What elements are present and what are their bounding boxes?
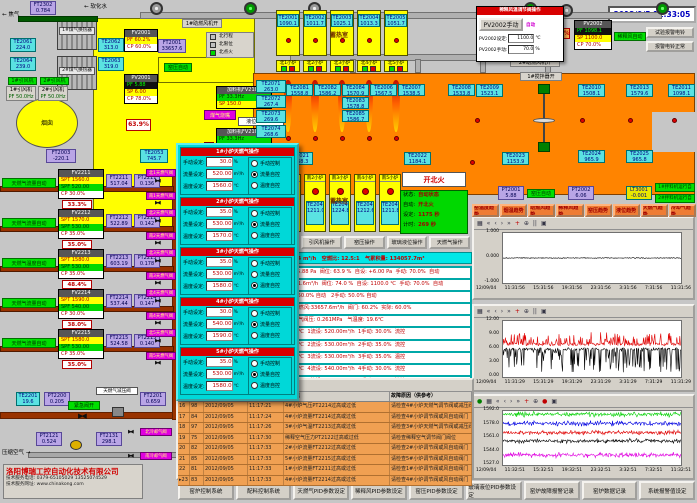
x-axis-tick: 3:32:51	[619, 468, 636, 473]
burner-field-input[interactable]: 35.0	[206, 257, 233, 267]
alarm-cell: 请检查1#小炉调节阀或风自动阀门	[390, 465, 472, 475]
burner-field-label: 温度设定:	[183, 283, 205, 290]
alarm-cell: 11:17:33	[248, 455, 284, 465]
chimney-label: 烟囱	[41, 120, 53, 127]
last-icon[interactable]: »	[507, 220, 511, 227]
radio-icon[interactable]	[251, 282, 258, 289]
trend-button-稀释风趋势[interactable]: 稀释风趋势	[556, 204, 583, 217]
burner-field-input[interactable]: 1580.0	[206, 281, 233, 291]
kiln-pressure-auto: 窑压自动	[527, 189, 555, 198]
gas-reducer-label: 天燃气减压阀	[96, 387, 138, 395]
run-icon[interactable]: ●	[477, 398, 482, 405]
gas-auto-mode: 天燃气流量自动	[2, 338, 56, 348]
emergency-valve-open: 紧急阀开	[68, 401, 100, 410]
sensor-dot	[286, 38, 291, 43]
main-gas-pt-value: 0.205	[45, 399, 69, 405]
x-axis-tick: 12/09/04	[476, 468, 496, 473]
radio-icon[interactable]	[251, 171, 258, 178]
pv2001-controller[interactable]: PV2001PF 5.88SP 6.00CP 78.0%	[124, 74, 158, 104]
burner-field-input[interactable]: 35.0	[206, 357, 233, 367]
next-icon[interactable]: ›	[501, 220, 503, 227]
2-id-fan-box[interactable]: 2#引风机PF 50.0Hz	[38, 86, 68, 101]
grid-icon[interactable]: ▦	[477, 308, 483, 315]
burner-field-input[interactable]: 30.0	[206, 157, 233, 167]
radio-icon[interactable]	[251, 232, 258, 239]
y-axis-tick: -1.000	[474, 279, 499, 284]
run-indicator-square	[335, 66, 341, 72]
gas-valve-north-icon[interactable]: ▶◀	[155, 299, 159, 304]
pt2001-kiln-pressure: PT20015.88	[498, 186, 524, 200]
gas-controller-FV2215[interactable]: FV2215SPT 1580.0SPF 530.00CP 35.0%	[58, 329, 104, 359]
gas-controller-FV2212-tag: FV2212	[59, 210, 103, 217]
save-icon[interactable]: ▣	[541, 220, 547, 227]
sensor-dot	[312, 188, 319, 195]
north-legend: 北行程北限位北点火	[206, 32, 254, 58]
gas-auto-mode: 天燃气流量自动	[2, 298, 56, 308]
south-chamber: 南4小炉TE20441212.6	[354, 174, 376, 232]
gas-valve-label-south: 南4天燃气阀	[146, 312, 176, 320]
bottom-button-窑炉数据记录[interactable]: 窑炉数据记录	[582, 481, 638, 500]
fv2001-controller-tag: FV2001	[125, 30, 157, 37]
burner-field-unit: %	[234, 160, 238, 165]
pv2002-manual-button[interactable]: PV2002手动	[479, 18, 523, 31]
x-axis-tick: 11:31:56	[505, 286, 525, 291]
radio-icon[interactable]	[251, 382, 258, 389]
alarm-table-row[interactable]: 18972012/09/0511:17:263#小炉气温FT2213过高或过低请…	[178, 423, 472, 434]
x-axis-tick: 15:31:56	[533, 286, 553, 291]
south-burner-name: 南4小炉	[355, 175, 375, 182]
gas-controller-FV2214-row: SPT 1590.0	[59, 297, 103, 304]
save-icon[interactable]: ▣	[551, 398, 557, 405]
right-te: TE20111098.1	[668, 84, 695, 97]
alarm-table-row[interactable]: ▸23832012/09/0511:17:334#小炉流量FT2214过高或过低…	[178, 476, 472, 487]
gas-controller-FV2212[interactable]: FV2212SPT 1570.0SPF 530.00CP 35.0%	[58, 209, 104, 239]
crown-te-value: 1570.9	[343, 91, 368, 96]
radio-icon[interactable]	[251, 160, 258, 167]
north-chamber-te-value: 1025.1	[332, 21, 352, 27]
burner-field-input[interactable]: 530.00	[206, 369, 233, 379]
pv2002-controller[interactable]: PV2002PF 1098.1SP 1100.0CP 70.0%	[574, 20, 612, 50]
ft2001-comb-air-flow-value: 33657.6	[159, 46, 185, 52]
zoom-icon[interactable]: ⊕	[524, 220, 529, 227]
radio-icon[interactable]	[251, 360, 258, 367]
burner-mode-option[interactable]: 手动控制	[249, 208, 291, 219]
radio-icon[interactable]	[251, 332, 258, 339]
prev-icon[interactable]: ‹	[504, 398, 506, 405]
gas-valve-south-icon[interactable]: ▶◀	[155, 281, 159, 286]
alarm-cell: 22	[178, 465, 190, 475]
burner-field-input[interactable]: 530.00	[206, 269, 233, 279]
pause-icon[interactable]: ||	[533, 308, 537, 315]
crown-te: TE20841570.9	[342, 84, 369, 96]
x-axis-ticks: 12/09/0411:31:2915:31:2919:31:2923:31:29…	[476, 380, 691, 385]
alarm-header-cell: 故障原因（供参考）	[390, 392, 472, 401]
gas-controller-FV2212-row: SPT 1570.0	[59, 217, 103, 224]
burner-panel-title: 3#小炉天燃气操作	[181, 248, 294, 256]
alarm-cell: 2012/09/05	[204, 444, 248, 454]
burner-field-input[interactable]: 1590.0	[206, 331, 233, 341]
burner-field-unit: %	[234, 210, 238, 215]
burner-mode-option[interactable]: 温度自控	[249, 280, 291, 291]
zoom-icon[interactable]: ⊕	[533, 398, 538, 405]
1-id-fan-box[interactable]: 1#引风机PF 50.0Hz	[6, 86, 36, 101]
gas-flow-FT2214-value: 537.44	[107, 301, 131, 307]
fan-icon	[656, 2, 669, 15]
mixer-2-auto: 2#拌料机运行自动	[655, 194, 695, 203]
main-gas-ft-value: 0.659	[141, 399, 165, 405]
gas-valve-percent: 38.0%	[62, 320, 92, 329]
burner-field-label: 流量设定:	[183, 221, 205, 228]
grid-icon[interactable]: ▦	[477, 220, 483, 227]
last-icon[interactable]: »	[507, 308, 511, 315]
pv2002-set-input[interactable]: 1100.0	[508, 34, 534, 43]
radio-icon[interactable]	[251, 221, 258, 228]
dilution-popup-title: 稀释风温调节阀操作	[477, 7, 563, 15]
y-axis-tick: 12.00	[474, 317, 499, 322]
x-axis-ticks: 12/09/0411:31:5615:31:5619:31:5623:31:56…	[476, 286, 691, 291]
burner-field-input[interactable]: 1560.0	[206, 181, 233, 191]
pv2002-set-unit: ℃	[535, 36, 540, 41]
alarm-table-row[interactable]: 19752012/09/0511:17:30稀释空气压力PT2122过高或过低请…	[178, 434, 472, 445]
radio-icon[interactable]	[251, 321, 258, 328]
mark-icon[interactable]: +	[515, 308, 520, 315]
pv2001-controller-row: CP 78.0%	[125, 96, 157, 103]
gas-controller-FV2213[interactable]: FV2213SPT 1580.0SPF 530.00CP 35.0%	[58, 249, 104, 279]
pause-icon[interactable]: ||	[533, 220, 537, 227]
x-axis-tick: 12/09/04	[476, 380, 496, 385]
dilution-auto-label: 稀释风自动	[614, 32, 646, 41]
radio-icon[interactable]	[251, 210, 258, 217]
burner-mode-option[interactable]: 手动控制	[249, 158, 291, 169]
right-te-value: 965.9	[579, 157, 604, 163]
trend-button-冷却气趋势[interactable]: 冷却气趋势	[669, 204, 696, 217]
gas-valve-north-icon[interactable]: ▶◀	[155, 179, 159, 184]
trend-chart-panel-2: ▦«‹›»+⊕||▣12.009.006.003.000.0012/09/041…	[472, 304, 695, 392]
burner-field-label: 流量设定:	[183, 271, 205, 278]
coke-gas-label: ← 焦气	[2, 10, 19, 18]
burner-mode-option[interactable]: 手动控制	[249, 308, 291, 319]
pv2002-man-input[interactable]: 70.0	[508, 45, 534, 54]
stirrer-motor-icon	[538, 84, 550, 94]
gas-valve-north-icon[interactable]: ▶◀	[155, 259, 159, 264]
alarm-table-row[interactable]: 22812012/09/0511:17:331#小炉流量FT2211过高或过低请…	[178, 465, 472, 476]
alarm-cell: 83	[190, 476, 204, 486]
fire-status-value: 269 秒	[418, 223, 436, 233]
chart-plot-area	[502, 232, 682, 284]
south-burner-name: 南3小炉	[330, 175, 350, 182]
y-axis-tick: 1578.0	[474, 421, 499, 426]
trend-button-窑温度趋势[interactable]: 窑温度趋势	[472, 204, 499, 217]
zoom-icon[interactable]: ⊕	[524, 308, 529, 315]
gas-auto-mode: 天燃气流量自动	[2, 218, 56, 228]
burner-mode-option[interactable]: 手动控制	[249, 258, 291, 269]
burner-field-unit: ℃	[234, 184, 239, 189]
trend-chart-panel-3: ●▦«‹›»+⊕●▣1592.01578.01561.01544.01527.0…	[472, 394, 695, 480]
x-axis-tick: 7:32:51	[645, 468, 662, 473]
crown-te: TE20811558.8	[286, 84, 313, 96]
alarm-cell: 11:17:24	[248, 413, 284, 423]
gas-controller-FV2214[interactable]: FV2214SPT 1590.0SPF 540.00CP 30.0%	[58, 289, 104, 319]
burner-mode-radios: 手动控制流量自控温度自控	[248, 307, 292, 345]
gas-flow-FT2211: FT2211517.04	[106, 174, 132, 188]
run-indicator-square	[281, 66, 287, 72]
radio-icon[interactable]	[251, 260, 258, 267]
first-icon[interactable]: «	[487, 220, 491, 227]
alarm-table-row[interactable]: 16982012/09/0511:17:214#小炉气压PT2214过高或过低请…	[178, 402, 472, 413]
north-burner-label[interactable]: 北1小炉	[276, 60, 300, 72]
bottom-te-value: 1184.1	[405, 159, 430, 165]
mark-icon[interactable]: +	[515, 220, 520, 227]
cooling-valve-north-icon[interactable]: ▶◀	[128, 430, 132, 435]
gas-controller-FV2213-row: SPT 1580.0	[59, 257, 103, 264]
burner-mode-label: 流量自控	[260, 171, 280, 178]
pv2002-controller-row: SP 1100.0	[575, 35, 611, 42]
1-id-fan-pf: PF 50.0Hz	[7, 94, 35, 101]
test-alarm-bell-button[interactable]: 试验报警电铃	[646, 27, 694, 38]
burner-field-label: 流量设定:	[183, 371, 205, 378]
furnace-left-te: TE2073269.6	[256, 110, 286, 123]
burner-field-input[interactable]: 30.0	[206, 307, 233, 317]
burner-field-label: 手动设定:	[183, 159, 205, 166]
burner-mode-option[interactable]: 流量自控	[249, 369, 291, 380]
south-chamber-te: TE20421211.0	[306, 201, 324, 225]
north-chamber-te: TE20021011.7	[304, 14, 326, 27]
crown-te-value: 1533.8	[449, 91, 474, 96]
y-axis-tick: 0.00	[474, 373, 499, 378]
lt3001-glass-level-value: -0.001	[627, 193, 651, 199]
gas-valve-label-north: 北5天燃气阀	[146, 329, 176, 337]
burner-field-label: 手动设定:	[183, 309, 205, 316]
air-valve-icon[interactable]	[70, 440, 82, 450]
burner-field-unit: m³/h	[234, 272, 244, 277]
te2061-temp: TE2061224.0	[10, 38, 36, 52]
chimney: 烟囱	[16, 98, 78, 148]
alarm-cell: 2#小炉流量FT2212过高或过低	[284, 444, 390, 454]
pv2001-controller-row: SP 6.00	[125, 89, 157, 96]
north-chamber-te-value: 1090.1	[278, 21, 298, 27]
north-burner-label[interactable]: 北3小炉	[330, 60, 354, 72]
gas-controller-FV2215-tag: FV2215	[59, 330, 103, 337]
burner-mode-option[interactable]: 流量自控	[249, 169, 291, 180]
gas-valve-label-north: 北3天燃气阀	[146, 249, 176, 257]
gas-flow-FT2213: FT2213603.19	[106, 254, 132, 268]
fv2001-controller[interactable]: FV2001PF 60.2%CP 60.0%	[124, 29, 158, 52]
lt3001-glass-level: LT3001-0.001	[626, 186, 652, 200]
trend-button-row: 窑温度趋势烟温趋势助燃风趋势稀释风趋势窑压趋势液位趋势天燃气趋势冷却气趋势	[472, 204, 696, 217]
gas-controller-FV2214-row: CP 30.0%	[59, 311, 103, 318]
series-红	[503, 430, 681, 435]
ft2302-flow: FT23020.784	[30, 1, 56, 15]
pv2001-controller-tag: PV2001	[125, 75, 157, 82]
alarm-cell: 11:17:21	[248, 402, 284, 412]
gas-reducer-valve-icon[interactable]	[112, 407, 124, 417]
emergency-valve-icon[interactable]: ▶◀	[78, 413, 85, 420]
burner-field-input[interactable]: 530.00	[206, 219, 233, 229]
burner-field-input[interactable]: 35.0	[206, 207, 233, 217]
alarm-table-row[interactable]: 17842012/09/0511:17:244#小炉流量FT2214过高或过低请…	[178, 413, 472, 424]
furnace-left-te-value: 263.0	[257, 87, 285, 93]
gas-flow-FT2215-value: 524.58	[107, 341, 131, 347]
x-axis-tick: 23:31:56	[591, 286, 611, 291]
alarm-cell: 3#小炉气温FT2213过高或过低	[284, 423, 390, 433]
chart-series-svg	[503, 233, 681, 283]
burner-field-input[interactable]: 1580.0	[206, 381, 233, 391]
op-button-玻璃液位操作[interactable]: 玻璃液位操作	[387, 236, 428, 249]
radio-icon[interactable]	[251, 371, 258, 378]
sensor-dot	[672, 118, 677, 123]
north-burner-label[interactable]: 北4小炉	[357, 60, 381, 72]
sensor-dot	[580, 118, 585, 123]
cooling-valve-north: 北冷却气阀	[140, 428, 172, 436]
north-burner-label[interactable]: 北5小炉	[384, 60, 408, 72]
series-蓝	[503, 421, 681, 427]
stop-indicator-square	[370, 66, 376, 72]
x-axis-ticks: 12/09/0411:32:5115:32:5119:32:5123:32:51…	[476, 468, 691, 473]
cooling-valve-south-icon[interactable]: ▶◀	[128, 454, 132, 459]
alarm-cell: 2012/09/05	[204, 476, 248, 486]
bottom-button-玻璃液位PID参数设定[interactable]: 玻璃液位PID参数设定	[466, 481, 522, 500]
flame-dot	[340, 136, 345, 141]
heat-exchanger-1-label: 1#煤气换热器	[59, 27, 95, 35]
burner-field-input[interactable]: 1570.0	[206, 231, 233, 241]
chart-plot-area	[502, 320, 682, 378]
first-icon[interactable]: «	[487, 308, 491, 315]
bottom-button-系统报警值设定[interactable]: 系统报警值设定	[639, 481, 695, 500]
burner-field-unit: ℃	[234, 284, 239, 289]
mark-icon[interactable]: +	[524, 398, 529, 405]
x-axis-tick: 12/09/04	[476, 286, 496, 291]
alarm-cell: 2012/09/05	[204, 413, 248, 423]
pv2002-controller-row: PF 1098.1	[575, 28, 611, 35]
gas-controller-FV2212-row: CP 35.0%	[59, 231, 103, 238]
flame-dot	[367, 136, 372, 141]
burner-mode-radios: 手动控制流量自控温度自控	[248, 357, 292, 395]
burner-field-input[interactable]: 540.00	[206, 319, 233, 329]
main-gas-pt: PT22000.205	[44, 392, 70, 406]
gas-valve-north-icon[interactable]: ▶◀	[155, 219, 159, 224]
burner-field-unit: m³/h	[234, 372, 244, 377]
gas-valve-south-icon[interactable]: ▶◀	[155, 241, 159, 246]
radio-icon[interactable]	[251, 271, 258, 278]
burner-mode-option[interactable]: 温度自控	[249, 380, 291, 391]
burner-mode-option[interactable]: 流量自控	[249, 219, 291, 230]
x-axis-tick: 23:31:29	[591, 380, 611, 385]
sensor-dot	[313, 38, 318, 43]
ft2001-comb-air-flow: FT200133657.6	[158, 39, 186, 53]
burner-mode-option[interactable]: 温度自控	[249, 330, 291, 341]
gas-flow-FT2214: FT2214537.44	[106, 294, 132, 308]
burner-mode-label: 温度自控	[260, 332, 280, 339]
burner-mode-label: 流量自控	[260, 221, 280, 228]
burner-mode-radios: 手动控制流量自控温度自控	[248, 157, 292, 195]
prev-icon[interactable]: ‹	[494, 220, 496, 227]
north-burner-label[interactable]: 北2小炉	[303, 60, 327, 72]
crown-te: TE20831578.8	[342, 97, 369, 109]
stop-indicator-square	[316, 66, 322, 72]
legend-square	[210, 42, 216, 48]
alarm-cell: 19	[178, 434, 190, 444]
crown-te: TE20071538.5	[398, 84, 425, 96]
alarm-cell: 98	[190, 402, 204, 412]
2-id-fan-pf: PF 50.0Hz	[39, 94, 67, 101]
fire-status-panel: 状态:自动状态自动:开北火设定:1175 秒计时:269 秒	[400, 190, 468, 234]
op-button-天燃气操作[interactable]: 天燃气操作	[429, 236, 470, 249]
grid-icon[interactable]: ▦	[486, 398, 492, 405]
gas-valve-north-icon[interactable]: ▶◀	[155, 339, 159, 344]
last-icon[interactable]: »	[516, 398, 520, 405]
soft-water-label: ← 软化水	[84, 2, 107, 10]
radio-icon[interactable]	[251, 182, 258, 189]
trend-button-天燃气趋势[interactable]: 天燃气趋势	[641, 204, 668, 217]
op-button-窑压操作[interactable]: 窑压操作	[344, 236, 385, 249]
alarm-table-row[interactable]: 20822012/09/0511:17:332#小炉流量FT2212过高或过低请…	[178, 444, 472, 455]
trend-button-液位趋势[interactable]: 液位趋势	[613, 204, 640, 217]
stop-icon[interactable]: ●	[542, 398, 547, 405]
burner-mode-option[interactable]: 温度自控	[249, 180, 291, 191]
trend-button-窑压趋势[interactable]: 窑压趋势	[585, 204, 612, 217]
gas-valve-south-icon[interactable]: ▶◀	[155, 201, 159, 206]
alarm-cell: 1#小炉流量FT2211过高或过低	[284, 465, 390, 475]
burner-indicators	[385, 66, 407, 72]
pv2001-controller-row: PF 5.88	[125, 82, 157, 89]
radio-icon[interactable]	[251, 310, 258, 317]
trend-button-烟温趋势[interactable]: 烟温趋势	[500, 204, 527, 217]
fan-icon	[244, 2, 257, 15]
right-te: TE20101508.1	[578, 84, 605, 97]
alarm-cell: 11:17:33	[248, 476, 284, 486]
first-icon[interactable]: «	[496, 398, 500, 405]
alarm-cell: 81	[190, 465, 204, 475]
burner-mode-option[interactable]: 手动控制	[249, 358, 291, 369]
save-icon[interactable]: ▣	[541, 308, 547, 315]
kiln-pressure-auto-label: 窑压自动	[164, 63, 192, 72]
gas-controller-FV2211-row: CP 30.0%	[59, 191, 103, 198]
alarm-cell: 11:17:33	[248, 465, 284, 475]
burner-mode-label: 温度自控	[260, 232, 280, 239]
gas-valve-percent: 35.0%	[62, 360, 92, 369]
burner-panel-title: 2#小炉天燃气操作	[181, 198, 294, 206]
burner-mode-option[interactable]: 流量自控	[249, 269, 291, 280]
north-chamber-te: TE20011090.1	[277, 14, 299, 27]
burner-field-unit: ℃	[234, 234, 239, 239]
alarm-table-row[interactable]: 21852012/09/0511:17:335#小炉流量FT2215过高或过低请…	[178, 455, 472, 466]
north-chamber-te-value: 1013.3	[359, 21, 379, 27]
gas-controller-FV2213-row: CP 35.0%	[59, 271, 103, 278]
burner-field-input[interactable]: 520.00	[206, 169, 233, 179]
gas-valve-label-north: 北4天燃气阀	[146, 289, 176, 297]
y-axis-tick: 9.00	[474, 331, 499, 336]
burner-mode-option[interactable]: 流量自控	[249, 319, 291, 330]
burner-field-label: 流量设定:	[183, 321, 205, 328]
bottom-button-窑炉故障报警记录[interactable]: 窑炉故障报警记录	[524, 481, 580, 500]
north-chamber-te: TE20051051.7	[385, 14, 407, 27]
air-ft2131: FT2131298.1	[96, 432, 122, 446]
next-icon[interactable]: ›	[510, 398, 512, 405]
burner-panel-title: 4#小炉天燃气操作	[181, 298, 294, 306]
gas-controller-FV2211[interactable]: FV2211SPT 1560.0SPF 520.00CP 30.0%	[58, 169, 104, 199]
trend-button-助燃风趋势[interactable]: 助燃风趋势	[528, 204, 555, 217]
gas-valve-south-icon[interactable]: ▶◀	[155, 361, 159, 366]
pv2002-controller-tag: PV2002	[575, 21, 611, 28]
prev-icon[interactable]: ‹	[494, 308, 496, 315]
next-icon[interactable]: ›	[501, 308, 503, 315]
alarm-cell: 75	[190, 434, 204, 444]
burner-mode-option[interactable]: 温度自控	[249, 230, 291, 241]
op-button-引风机操作[interactable]: 引风机操作	[301, 236, 342, 249]
fv2001-controller-row: PF 60.2%	[125, 37, 157, 44]
alarm-bell-ok-button[interactable]: 报警电铃正常	[646, 41, 694, 52]
gas-valve-south-icon[interactable]: ▶◀	[155, 321, 159, 326]
